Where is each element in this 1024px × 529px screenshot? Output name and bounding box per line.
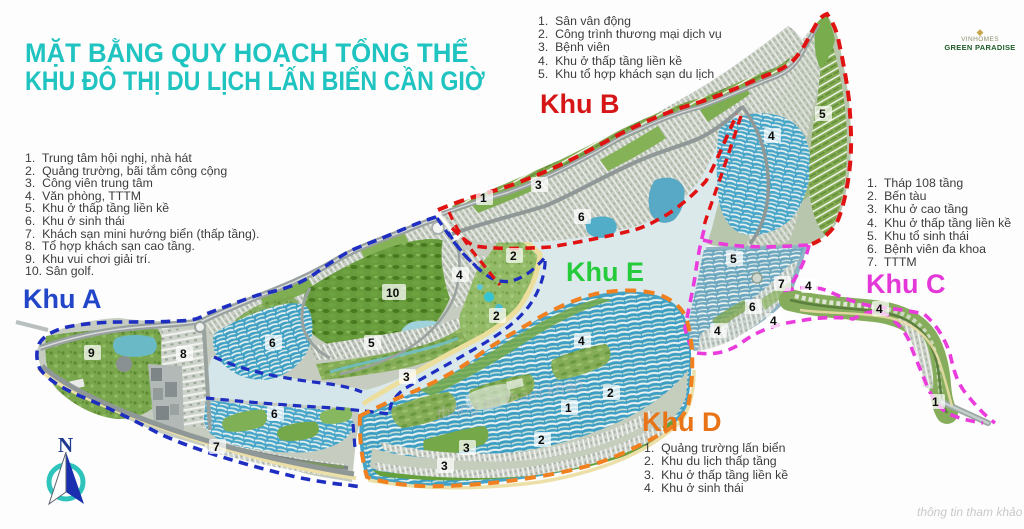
svg-text:7: 7 (778, 277, 785, 291)
svg-text:8: 8 (180, 347, 187, 361)
svg-text:4: 4 (876, 302, 883, 316)
svg-text:5: 5 (819, 107, 826, 121)
svg-text:3: 3 (441, 459, 448, 473)
svg-text:1: 1 (932, 395, 939, 409)
svg-text:4: 4 (578, 334, 585, 348)
svg-text:2: 2 (607, 386, 614, 400)
svg-text:5: 5 (368, 336, 375, 350)
svg-text:5: 5 (730, 252, 737, 266)
svg-text:3: 3 (403, 370, 410, 384)
svg-text:9: 9 (88, 346, 95, 360)
svg-text:N: N (58, 433, 73, 457)
svg-text:6: 6 (578, 210, 585, 224)
svg-text:6: 6 (749, 300, 756, 314)
svg-text:6: 6 (269, 336, 276, 350)
svg-text:3: 3 (535, 178, 542, 192)
svg-text:4: 4 (714, 324, 721, 338)
svg-text:7: 7 (213, 440, 220, 454)
svg-text:4: 4 (770, 314, 777, 328)
svg-text:4: 4 (805, 279, 812, 293)
svg-text:3: 3 (463, 441, 470, 455)
svg-text:10: 10 (386, 286, 400, 300)
svg-text:2: 2 (493, 309, 500, 323)
svg-text:4: 4 (768, 129, 775, 143)
svg-text:1: 1 (480, 191, 487, 205)
svg-text:2: 2 (510, 249, 517, 263)
svg-text:2: 2 (538, 433, 545, 447)
svg-text:4: 4 (456, 268, 463, 282)
svg-text:1: 1 (565, 401, 572, 415)
svg-text:6: 6 (271, 407, 278, 421)
